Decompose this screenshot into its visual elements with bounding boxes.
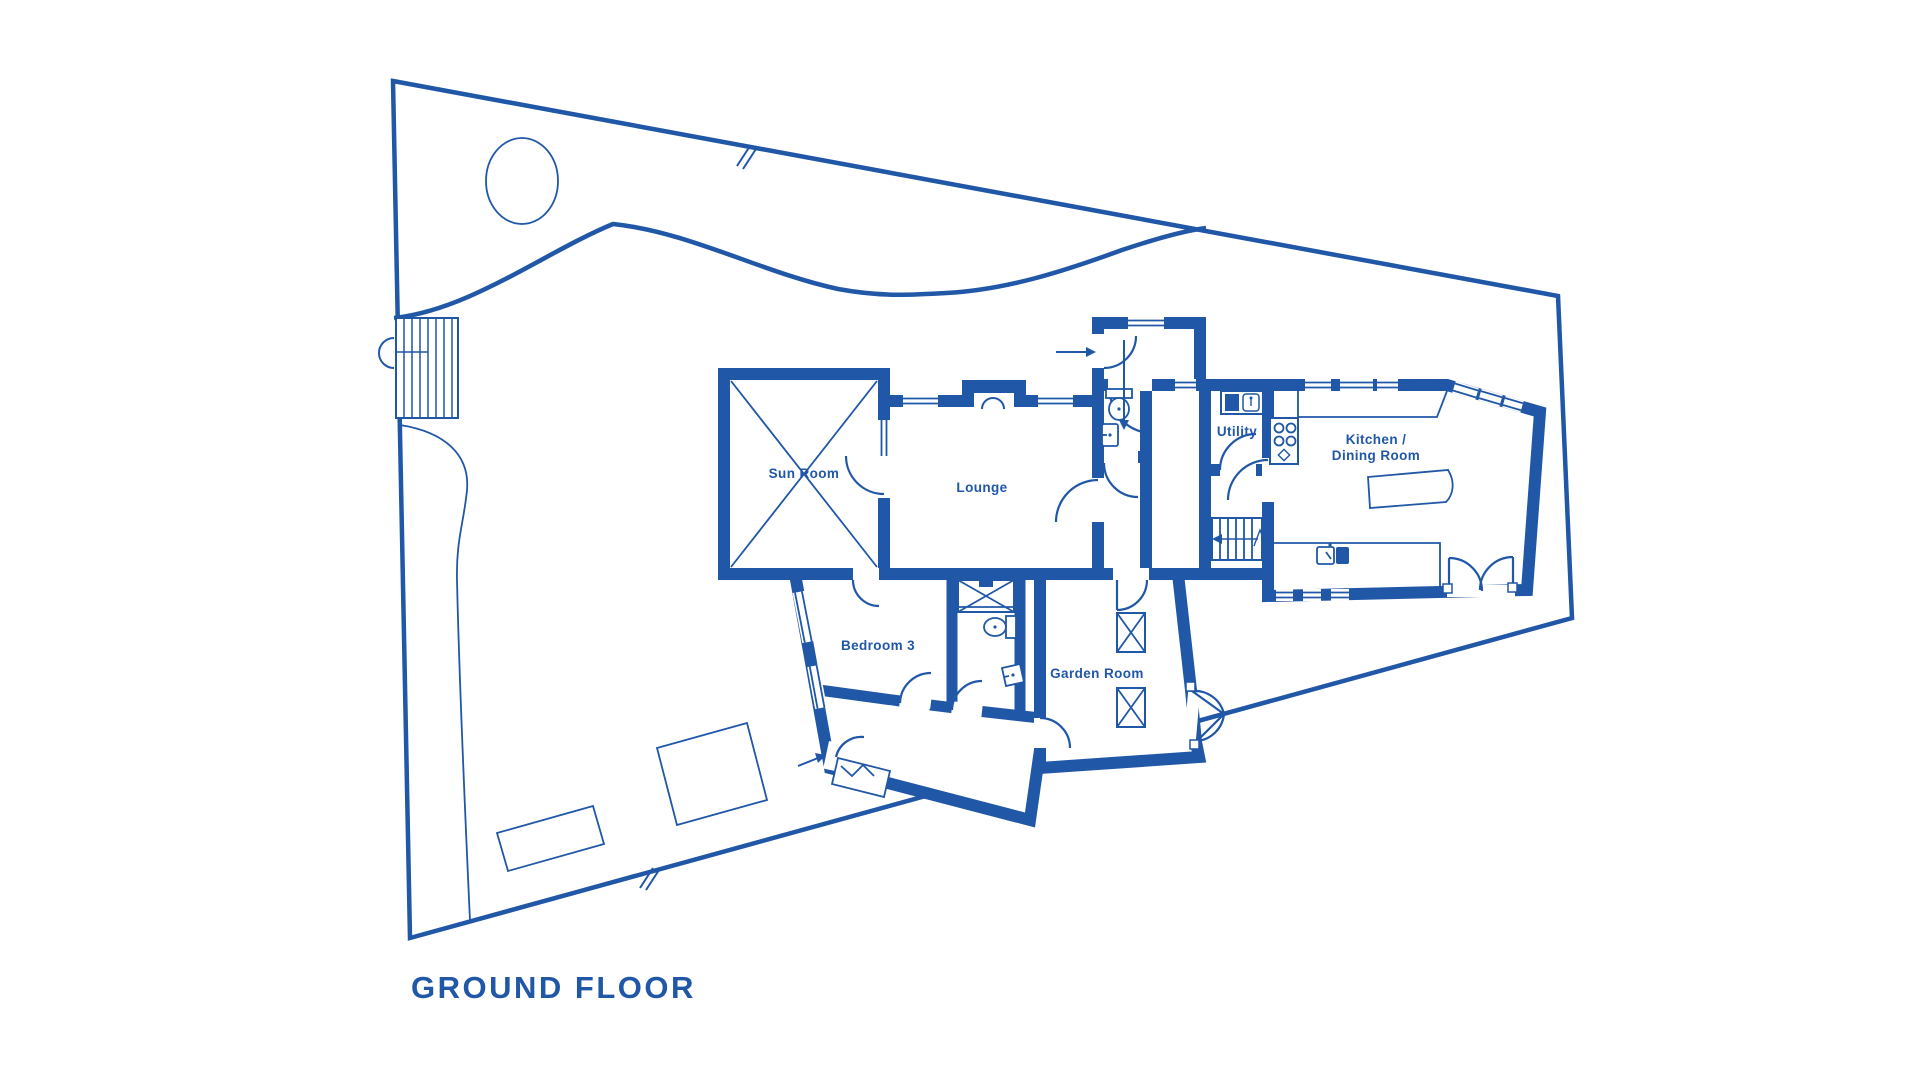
utility-sink-symbol	[1221, 391, 1263, 414]
washbasin-symbol	[1102, 424, 1118, 446]
window-icon	[1175, 379, 1196, 391]
deck-steps-symbol	[379, 318, 458, 418]
rear-entrance-arrow-icon	[798, 753, 826, 766]
utility-label: Utility	[1217, 424, 1257, 439]
lounge-label: Lounge	[956, 480, 1007, 495]
porch-walls	[1098, 323, 1200, 385]
hall-walls	[1146, 385, 1205, 574]
bedroom-3-label: Bedroom 3	[841, 638, 915, 653]
sun-room-label: Sun Room	[769, 466, 840, 481]
toilet-symbol	[984, 616, 1016, 638]
kitchen-label-1: Kitchen /	[1346, 432, 1407, 447]
shower-symbol	[958, 580, 1014, 612]
tree-symbol	[486, 138, 558, 224]
hob-symbol	[1270, 418, 1298, 464]
patio-base	[657, 723, 767, 825]
window-icon	[1276, 589, 1349, 601]
window-icon	[1305, 379, 1398, 391]
window-icon	[878, 420, 890, 456]
page-title: GROUND FLOOR	[411, 970, 696, 1005]
front-entrance-arrow-icon	[1056, 347, 1096, 357]
toilet-symbol	[1106, 389, 1132, 420]
ground-floor-plan: Sun Room Lounge Utility Kitchen / Dining…	[0, 0, 1920, 1080]
floorplan-page: Sun Room Lounge Utility Kitchen / Dining…	[0, 0, 1920, 1080]
window-icon	[1128, 317, 1164, 329]
garden-room-label: Garden Room	[1050, 666, 1144, 681]
lawn-edge-curve	[394, 224, 1206, 318]
kitchen-label-2: Dining Room	[1332, 448, 1420, 463]
wc-door	[1104, 451, 1138, 497]
garden-bed-curve	[400, 425, 470, 921]
washbasin-symbol	[1002, 664, 1024, 686]
staircase-symbol	[1212, 518, 1266, 560]
shed-base	[497, 806, 604, 871]
kitchen-island-symbol	[1368, 470, 1453, 508]
